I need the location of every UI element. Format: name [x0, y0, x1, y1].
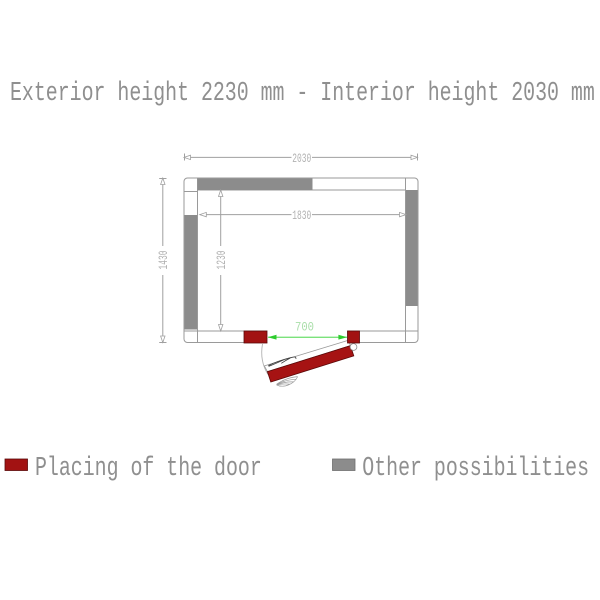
svg-text:Exterior height 2230 mm - Inte: Exterior height 2230 mm - Interior heigh… [10, 78, 595, 109]
svg-text:2030: 2030 [292, 151, 311, 166]
svg-text:Placing of the door: Placing of the door [35, 453, 262, 484]
svg-text:1430: 1430 [156, 251, 171, 270]
svg-text:700: 700 [295, 320, 314, 335]
svg-text:1230: 1230 [214, 251, 229, 270]
svg-text:1830: 1830 [292, 208, 311, 223]
svg-text:Other possibilities: Other possibilities [362, 453, 589, 484]
